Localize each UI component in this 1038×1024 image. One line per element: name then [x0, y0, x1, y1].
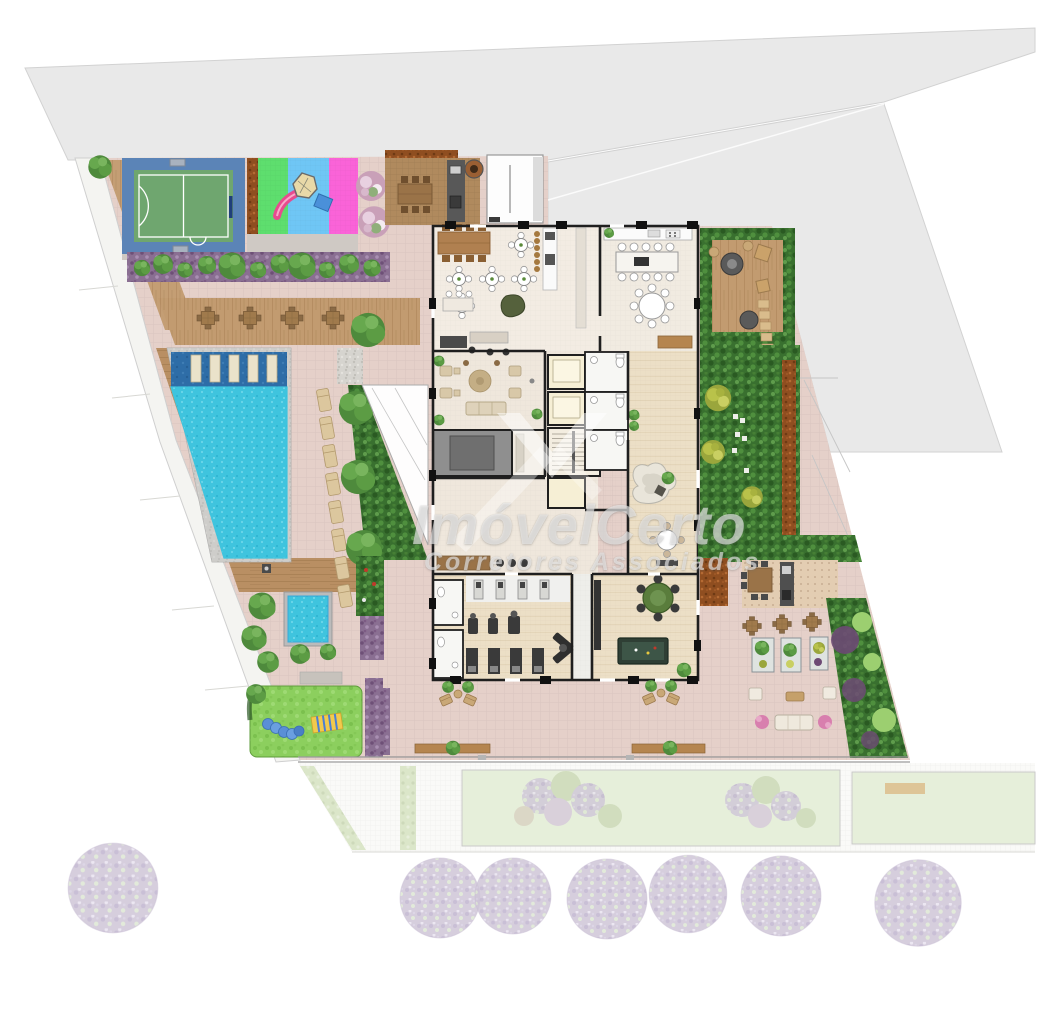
bbq-table — [398, 176, 432, 213]
bar-counter — [470, 332, 508, 343]
east-terrace — [700, 228, 795, 352]
street-sidewalk — [68, 763, 1035, 946]
planting-bed-main — [462, 770, 840, 846]
flower-bed-row — [127, 252, 390, 282]
garden-planters — [752, 637, 828, 672]
goal-top — [170, 159, 185, 166]
sports-court — [122, 158, 245, 260]
entrance-lobby — [487, 155, 543, 223]
billiard-table — [618, 638, 668, 664]
shelving — [594, 580, 601, 650]
goal-bottom — [173, 246, 188, 253]
grand-piano — [501, 295, 525, 317]
round-dining-table — [630, 284, 674, 328]
bbq-gourmet-top — [385, 150, 483, 225]
hall-bench — [656, 560, 678, 566]
goal-line — [229, 196, 233, 218]
bed-strip — [400, 766, 416, 850]
outdoor-sofa — [775, 715, 813, 730]
floor-plan-drawing — [0, 0, 1038, 1024]
flower-bed-east1 — [356, 556, 384, 616]
planting-bed-right — [852, 772, 1035, 844]
kids-pool-water — [288, 596, 328, 642]
site-plan-image: ImóvelCerto Corretores Associados — [0, 0, 1038, 1024]
bathrooms — [585, 352, 628, 470]
flower-bed-east2 — [360, 616, 384, 660]
sideboard — [437, 556, 490, 570]
street-trees — [68, 843, 961, 946]
fire-table-2 — [740, 311, 758, 329]
